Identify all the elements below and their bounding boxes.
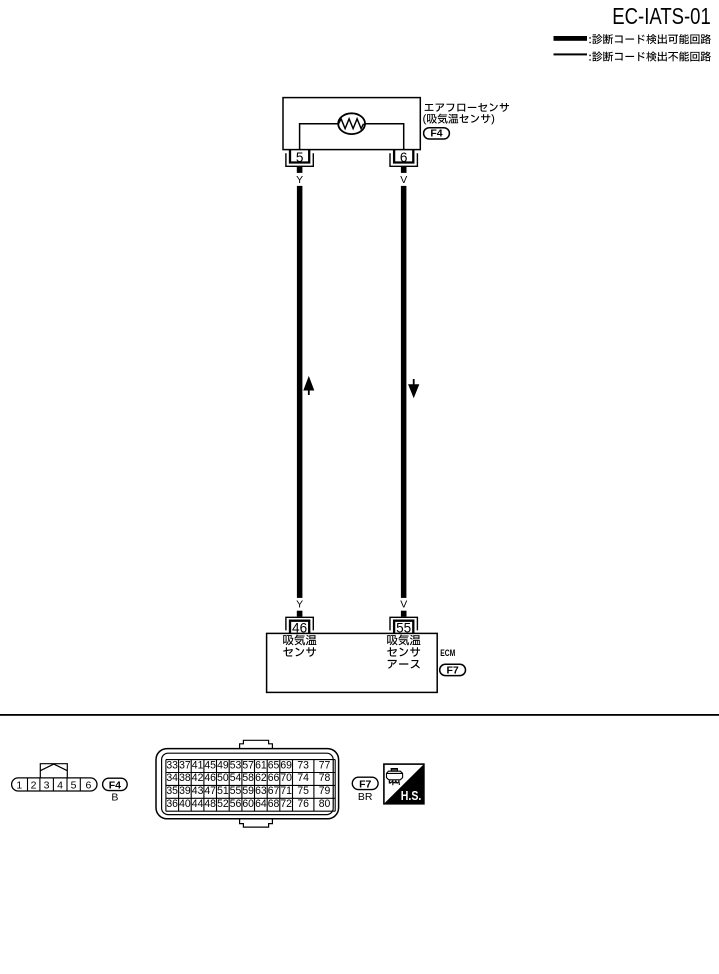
- svg-text:76: 76: [297, 798, 309, 810]
- svg-text:3: 3: [44, 779, 50, 791]
- svg-text:55: 55: [230, 785, 242, 797]
- svg-text:53: 53: [230, 759, 242, 771]
- svg-text:37: 37: [179, 759, 191, 771]
- svg-text:B: B: [111, 792, 118, 804]
- svg-text:EC-IATS-01: EC-IATS-01: [612, 3, 711, 29]
- svg-text:Y: Y: [296, 598, 303, 610]
- svg-text:58: 58: [242, 772, 254, 784]
- svg-text:71: 71: [280, 785, 292, 797]
- svg-text:63: 63: [255, 785, 267, 797]
- svg-text:V: V: [400, 174, 407, 186]
- svg-text:49: 49: [217, 759, 229, 771]
- svg-text:41: 41: [192, 759, 204, 771]
- svg-text:43: 43: [192, 785, 204, 797]
- svg-text:70: 70: [280, 772, 292, 784]
- svg-text:F4: F4: [109, 779, 121, 791]
- svg-text:4: 4: [57, 779, 63, 791]
- svg-text:56: 56: [230, 798, 242, 810]
- svg-text:78: 78: [319, 772, 331, 784]
- svg-text:54: 54: [230, 772, 242, 784]
- svg-text:V: V: [400, 598, 407, 610]
- svg-text:47: 47: [204, 785, 216, 797]
- svg-text:BR: BR: [358, 791, 373, 803]
- svg-text:42: 42: [192, 772, 204, 784]
- svg-text:67: 67: [268, 785, 280, 797]
- svg-text:66: 66: [268, 772, 280, 784]
- svg-text:40: 40: [179, 798, 191, 810]
- svg-text:79: 79: [319, 785, 331, 797]
- svg-text:50: 50: [217, 772, 229, 784]
- svg-text:F4: F4: [430, 128, 442, 140]
- svg-text:Y: Y: [296, 174, 303, 186]
- svg-text:2: 2: [31, 779, 37, 791]
- svg-text:44: 44: [192, 798, 204, 810]
- svg-text:72: 72: [280, 798, 292, 810]
- svg-text:ECM: ECM: [440, 648, 455, 658]
- svg-text:39: 39: [179, 785, 191, 797]
- svg-text:75: 75: [297, 785, 309, 797]
- svg-text:62: 62: [255, 772, 267, 784]
- svg-text:69: 69: [280, 759, 292, 771]
- svg-text:33: 33: [166, 759, 178, 771]
- svg-text:6: 6: [85, 779, 91, 791]
- svg-text:77: 77: [319, 759, 331, 771]
- svg-text:57: 57: [242, 759, 254, 771]
- svg-text:61: 61: [255, 759, 267, 771]
- svg-text:80: 80: [319, 798, 331, 810]
- svg-text:48: 48: [204, 798, 216, 810]
- svg-text:36: 36: [166, 798, 178, 810]
- svg-text:45: 45: [204, 759, 216, 771]
- svg-text:73: 73: [297, 759, 309, 771]
- svg-text:38: 38: [179, 772, 191, 784]
- svg-text:51: 51: [217, 785, 229, 797]
- svg-text:35: 35: [166, 785, 178, 797]
- svg-text:5: 5: [296, 150, 304, 165]
- svg-text:52: 52: [217, 798, 229, 810]
- svg-text:60: 60: [242, 798, 254, 810]
- svg-text:F7: F7: [446, 664, 458, 676]
- svg-text:46: 46: [204, 772, 216, 784]
- svg-text:65: 65: [268, 759, 280, 771]
- svg-text:59: 59: [242, 785, 254, 797]
- svg-text:F7: F7: [359, 778, 371, 790]
- svg-text:68: 68: [268, 798, 280, 810]
- svg-text:74: 74: [297, 772, 309, 784]
- svg-text:5: 5: [71, 779, 77, 791]
- svg-text:64: 64: [255, 798, 267, 810]
- svg-text:1: 1: [16, 779, 22, 791]
- svg-text:H.S.: H.S.: [401, 788, 422, 803]
- svg-text:34: 34: [166, 772, 178, 784]
- svg-text:6: 6: [400, 150, 408, 165]
